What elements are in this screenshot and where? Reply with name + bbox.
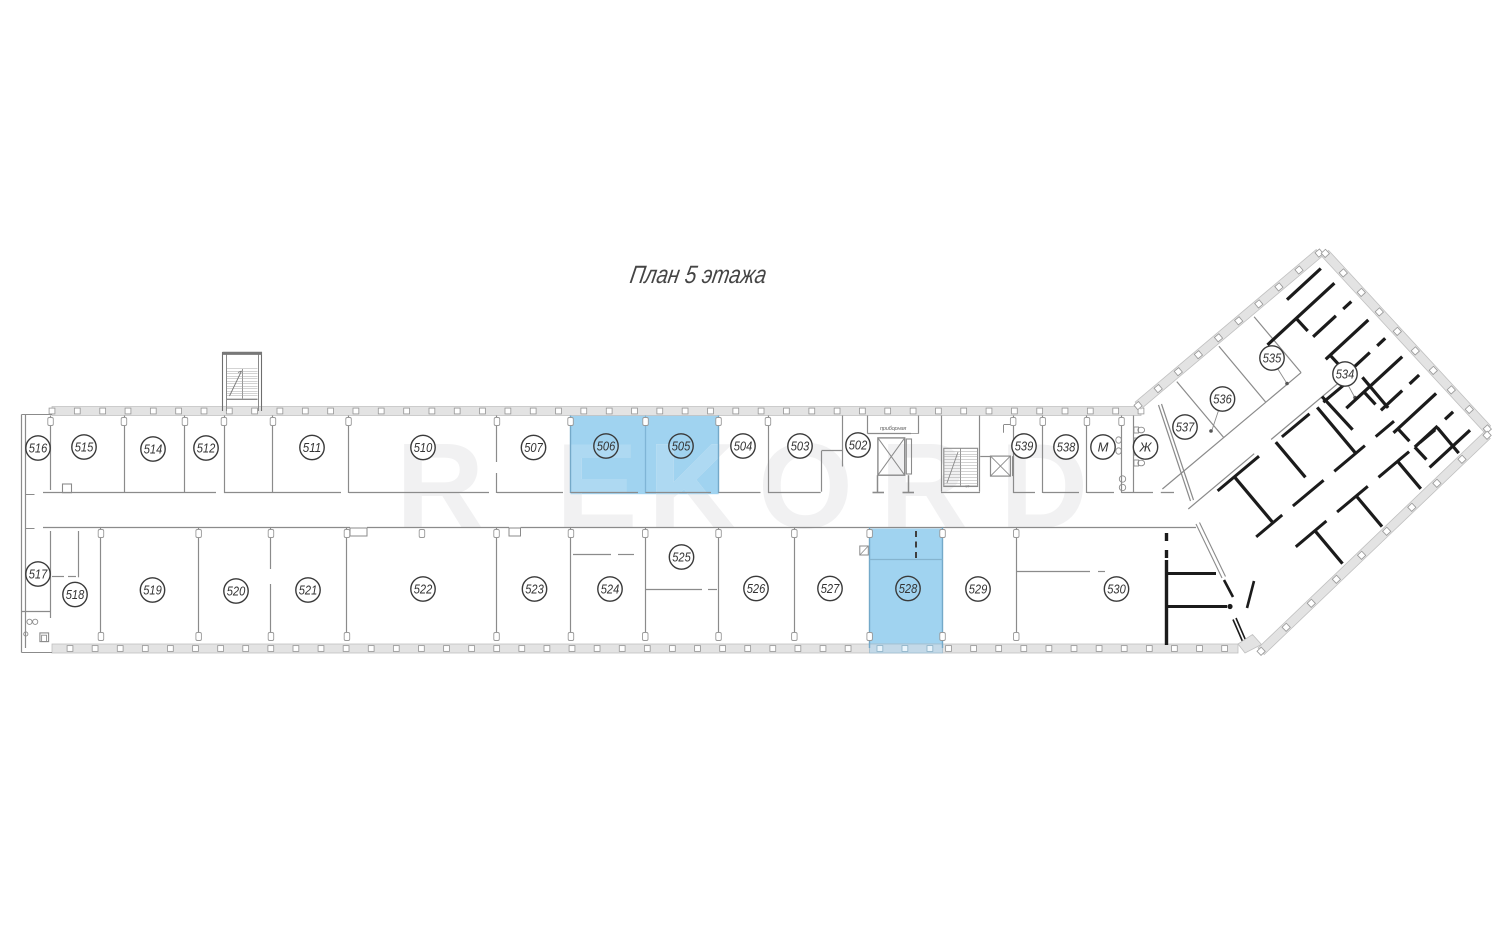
svg-text:526: 526 <box>747 581 766 596</box>
svg-text:507: 507 <box>524 440 543 455</box>
svg-text:537: 537 <box>1176 420 1195 435</box>
svg-text:523: 523 <box>525 582 544 597</box>
svg-text:эт: эт <box>965 484 969 489</box>
svg-text:503: 503 <box>791 439 810 454</box>
svg-text:506: 506 <box>597 439 616 454</box>
svg-text:522: 522 <box>414 582 433 597</box>
svg-text:528: 528 <box>899 581 918 596</box>
svg-text:521: 521 <box>299 583 318 598</box>
svg-text:536: 536 <box>1213 392 1232 407</box>
svg-text:539: 539 <box>1015 439 1034 454</box>
svg-text:502: 502 <box>849 438 868 453</box>
svg-text:518: 518 <box>66 587 85 602</box>
svg-text:538: 538 <box>1057 440 1076 455</box>
svg-text:511: 511 <box>303 440 322 455</box>
svg-text:512: 512 <box>197 441 216 456</box>
svg-text:525: 525 <box>672 550 691 565</box>
svg-text:517: 517 <box>29 567 48 582</box>
svg-text:514: 514 <box>144 442 163 457</box>
svg-text:520: 520 <box>227 584 246 599</box>
svg-text:516: 516 <box>29 441 48 456</box>
svg-text:План 5 этажа: План 5 этажа <box>628 261 769 289</box>
svg-text:R: R <box>396 418 484 554</box>
svg-text:535: 535 <box>1263 351 1282 366</box>
svg-text:515: 515 <box>75 440 94 455</box>
svg-text:505: 505 <box>672 439 691 454</box>
svg-text:504: 504 <box>734 439 753 454</box>
svg-text:529: 529 <box>969 582 988 597</box>
svg-text:527: 527 <box>821 581 840 596</box>
svg-text:519: 519 <box>143 583 162 598</box>
svg-text:530: 530 <box>1107 582 1126 597</box>
svg-text:Ж: Ж <box>1139 440 1153 455</box>
svg-text:524: 524 <box>601 582 620 597</box>
svg-text:534: 534 <box>1336 367 1355 382</box>
svg-text:M: M <box>1098 440 1109 455</box>
svg-text:приборная: приборная <box>880 426 906 432</box>
svg-text:510: 510 <box>414 440 433 455</box>
